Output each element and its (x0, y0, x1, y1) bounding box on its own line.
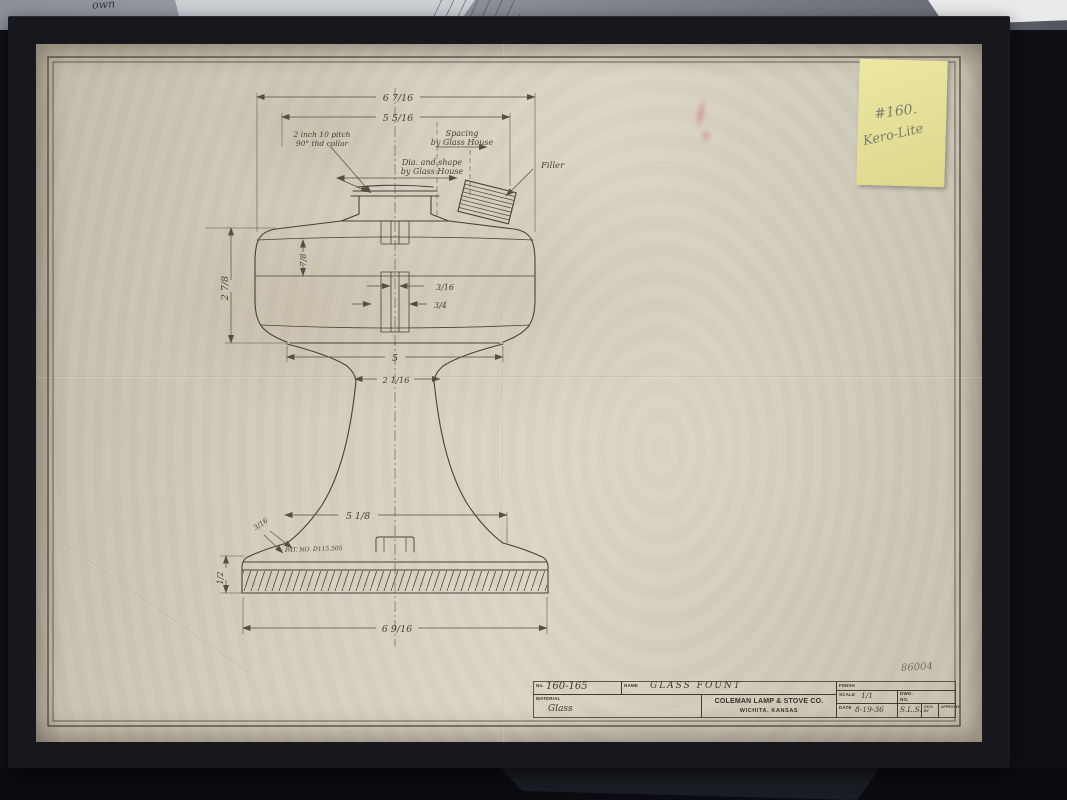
blueprint-paper (36, 44, 982, 742)
backdrop-handwriting: own (92, 0, 116, 12)
title-block-scale-cell: SCALE 1/1 (836, 690, 898, 704)
red-smudge (699, 128, 713, 144)
dwg-label: DWG. (900, 691, 913, 696)
sticky-note-line2: Kero-Lite (862, 121, 925, 149)
title-block-company-cell: COLEMAN LAMP & STOVE CO. WICHITA, KANSAS (701, 694, 837, 718)
date-value: 8-19-36 (855, 705, 884, 714)
sticky-note-line1: #160. (873, 101, 918, 122)
company-name: COLEMAN LAMP & STOVE CO. (702, 698, 836, 705)
name-value: GLASS FOUNT (650, 681, 742, 691)
no-label: No. (536, 683, 544, 688)
handwritten-sheet-number: 86004 (901, 661, 933, 674)
company-location: WICHITA, KANSAS (702, 708, 836, 714)
paper-crease-horizontal (36, 376, 982, 378)
no-value: 160-165 (546, 681, 588, 692)
drafter-initials: S.L.S. (900, 705, 922, 714)
material-value: Glass (548, 704, 573, 714)
ckd-label: CK'D BY (924, 705, 938, 713)
title-block-date-cell: DATE 8-19-36 (836, 703, 898, 718)
title-block-approved-cell: APPROVED (938, 703, 956, 718)
title-block-ckd-cell: CK'D BY (921, 703, 939, 718)
date-label: DATE (839, 705, 852, 710)
title-block-name-cell: NAME GLASS FOUNT (621, 681, 837, 695)
scale-label: SCALE (839, 692, 855, 697)
title-block-no-cell: No. 160-165 (533, 681, 622, 695)
title-block-by-cell: S.L.S. (897, 703, 922, 718)
approved-label: APPROVED (941, 705, 961, 709)
paper-crease-vertical (502, 44, 504, 742)
sticky-note: #160. Kero-Lite (856, 59, 947, 187)
dwg-no-label: NO. (900, 697, 909, 702)
title-block-dwg-cell: DWG. NO. (897, 690, 956, 704)
name-label: NAME (624, 683, 638, 688)
title-block-material-cell: MATERIAL Glass (533, 694, 702, 718)
finish-label: FINISH (839, 683, 855, 688)
material-label: MATERIAL (536, 696, 561, 701)
scale-value: 1/1 (861, 691, 873, 700)
photo-scene: own (0, 0, 1067, 800)
